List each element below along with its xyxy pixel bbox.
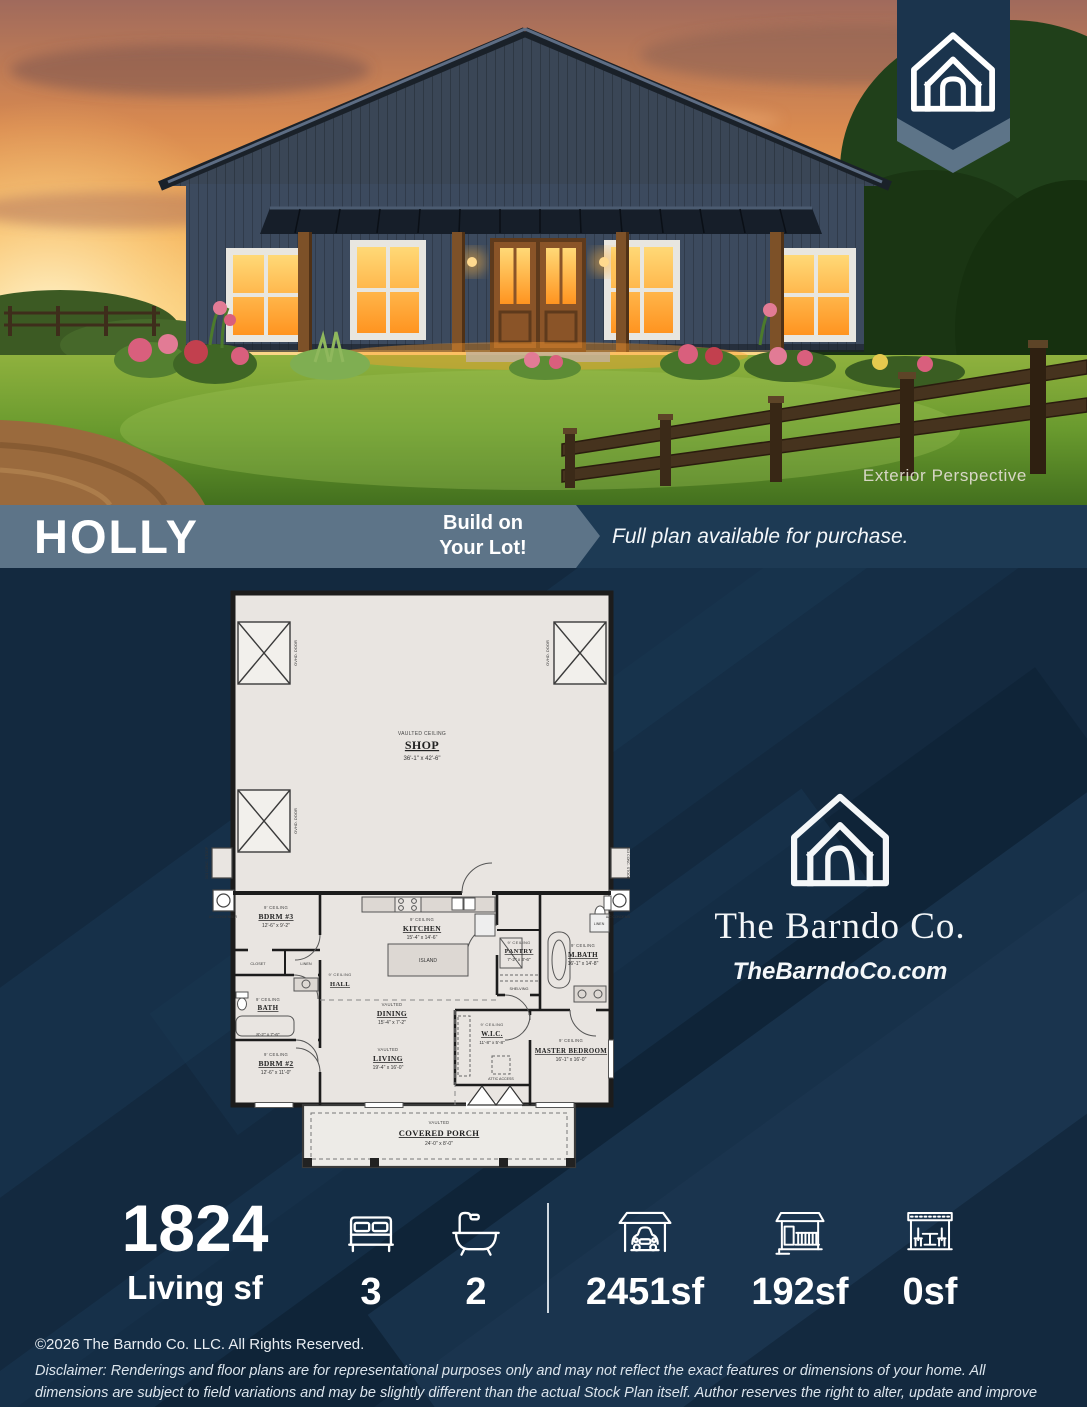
svg-text:A/C CONDENSER: A/C CONDENSER [209, 915, 238, 919]
svg-text:LINEN: LINEN [594, 922, 605, 926]
svg-text:19'-4" x 16'-0": 19'-4" x 16'-0" [373, 1065, 404, 1071]
svg-text:9' CEILING: 9' CEILING [559, 1038, 583, 1043]
svg-text:15'-4" x 7'-2": 15'-4" x 7'-2" [378, 1020, 406, 1026]
svg-text:VAULTED: VAULTED [378, 1047, 399, 1052]
svg-text:ATTIC ACCESS: ATTIC ACCESS [488, 1077, 514, 1081]
garage-sf-value: 2451sf [585, 1271, 705, 1314]
badge-line1: Build on [398, 511, 568, 536]
svg-text:PANTRY: PANTRY [505, 948, 534, 955]
footer: ©2026 The Barndo Co. LLC. All Rights Res… [35, 1336, 1055, 1407]
svg-text:KITCHEN: KITCHEN [403, 924, 441, 933]
exterior-render [0, 0, 1087, 505]
lawn-highlight [120, 370, 960, 490]
patio-sf-value: 0sf [880, 1271, 980, 1314]
brand-block: The Barndo Co. TheBarndoCo.com [690, 790, 990, 986]
svg-text:11'-8" x 5'-8": 11'-8" x 5'-8" [479, 1040, 505, 1045]
front-door [490, 238, 586, 352]
svg-text:LINEN: LINEN [300, 962, 311, 966]
plan-title: HOLLY [34, 505, 199, 568]
porch-roof [260, 208, 822, 234]
svg-text:COVERED PORCH: COVERED PORCH [399, 1128, 480, 1138]
room-dims: 36'-1" x 42'-6" [404, 756, 441, 762]
svg-text:OVHD. DOOR: OVHD. DOOR [293, 808, 298, 834]
living-sf-stat: 1824 Living sf [105, 1195, 285, 1307]
barn-logo-icon-large [775, 790, 905, 890]
svg-text:16'-1" x 14'-8": 16'-1" x 14'-8" [568, 961, 599, 967]
build-on-your-lot-badge: Build on Your Lot! [398, 511, 568, 561]
garage-sf-stat: 2451sf [585, 1203, 705, 1314]
living-sf-value: 1824 [105, 1195, 285, 1261]
living-sf-label: Living sf [105, 1269, 285, 1307]
photo-caption: Exterior Perspective [863, 466, 1027, 486]
patio-sf-stat: 0sf [880, 1203, 980, 1314]
svg-text:LIVING: LIVING [373, 1054, 403, 1063]
svg-text:VAULTED: VAULTED [382, 1002, 403, 1007]
svg-text:CLOSET: CLOSET [250, 962, 266, 966]
svg-text:9' CEILING: 9' CEILING [264, 1052, 288, 1057]
stats-divider [547, 1203, 549, 1313]
svg-text:3X3 CONC. STOOP: 3X3 CONC. STOOP [626, 847, 630, 880]
svg-text:A/C CONDENSER: A/C CONDENSER [606, 915, 630, 919]
svg-text:12'-6" x 11'-0": 12'-6" x 11'-0" [261, 1070, 292, 1076]
svg-text:HALL: HALL [330, 981, 350, 988]
bathtub-icon [445, 1203, 507, 1261]
purchase-tagline: Full plan available for purchase. [612, 505, 909, 568]
porch-sf-value: 192sf [742, 1271, 858, 1314]
beds-count: 3 [335, 1271, 407, 1314]
floor-plan-drawing: VAULTED CEILING SHOP 36'-1" x 42'-6" 9' … [200, 585, 630, 1185]
svg-text:9' CEILING: 9' CEILING [256, 997, 280, 1002]
svg-text:15'-4" x 14'-6": 15'-4" x 14'-6" [407, 935, 438, 941]
company-name: The Barndo Co. [690, 905, 990, 948]
svg-text:9' CEILING: 9' CEILING [264, 905, 288, 910]
svg-text:3X3 CONC. STOOP: 3X3 CONC. STOOP [205, 846, 209, 879]
room-ceiling: VAULTED CEILING [398, 731, 446, 737]
svg-text:SHELVING: SHELVING [510, 987, 529, 991]
porch-icon [769, 1203, 831, 1261]
svg-text:ISLAND: ISLAND [419, 958, 437, 964]
disclaimer-text: Disclaimer: Renderings and floor plans a… [35, 1361, 1055, 1407]
room-name: SHOP [405, 738, 439, 752]
patio-icon [900, 1203, 960, 1261]
company-website: TheBarndoCo.com [690, 958, 990, 986]
svg-text:M.BATH: M.BATH [568, 951, 598, 959]
badge-line2: Your Lot! [398, 536, 568, 561]
beds-stat: 3 [335, 1203, 407, 1314]
svg-text:DINING: DINING [377, 1009, 407, 1018]
svg-text:OVHD. DOOR: OVHD. DOOR [545, 640, 550, 666]
floor-plan: VAULTED CEILING SHOP 36'-1" x 42'-6" 9' … [200, 585, 630, 1185]
svg-text:24'-0" x 8'-0": 24'-0" x 8'-0" [425, 1141, 453, 1147]
porch-sf-stat: 192sf [742, 1203, 858, 1314]
brand-badge [897, 0, 1010, 173]
baths-stat: 2 [440, 1203, 512, 1314]
svg-text:9' CEILING: 9' CEILING [480, 1022, 503, 1027]
stats-row: 1824 Living sf 3 [0, 1185, 1087, 1333]
svg-text:BDRM #3: BDRM #3 [258, 912, 293, 921]
svg-text:W.I.C.: W.I.C. [481, 1030, 503, 1038]
svg-text:9' CEILING: 9' CEILING [328, 972, 351, 977]
svg-text:9' CEILING: 9' CEILING [507, 940, 530, 945]
flyer-page: Exterior Perspective HOLLY Build on Your… [0, 0, 1087, 1407]
exterior-photo: Exterior Perspective [0, 0, 1087, 505]
svg-text:VAULTED: VAULTED [429, 1120, 450, 1125]
svg-text:9' CEILING: 9' CEILING [571, 943, 595, 948]
bed-icon [340, 1203, 402, 1261]
copyright-text: ©2026 The Barndo Co. LLC. All Rights Res… [35, 1336, 1055, 1353]
title-banner: HOLLY Build on Your Lot! Full plan avail… [0, 505, 1087, 568]
svg-text:12'-6" x 9'-2": 12'-6" x 9'-2" [262, 923, 290, 929]
garage-icon [613, 1203, 677, 1261]
svg-text:7'-2" x 3'-6": 7'-2" x 3'-6" [507, 957, 531, 962]
baths-count: 2 [440, 1271, 512, 1314]
svg-text:9' CEILING: 9' CEILING [410, 917, 434, 922]
svg-text:BDRM #2: BDRM #2 [258, 1059, 293, 1068]
svg-text:BATH: BATH [258, 1004, 279, 1012]
svg-text:MASTER BEDROOM: MASTER BEDROOM [535, 1048, 607, 1055]
svg-text:OVHD. DOOR: OVHD. DOOR [293, 640, 298, 666]
svg-text:8'-2" x 7'-6": 8'-2" x 7'-6" [256, 1032, 280, 1037]
svg-text:16'-1" x 16'-0": 16'-1" x 16'-0" [556, 1057, 587, 1063]
